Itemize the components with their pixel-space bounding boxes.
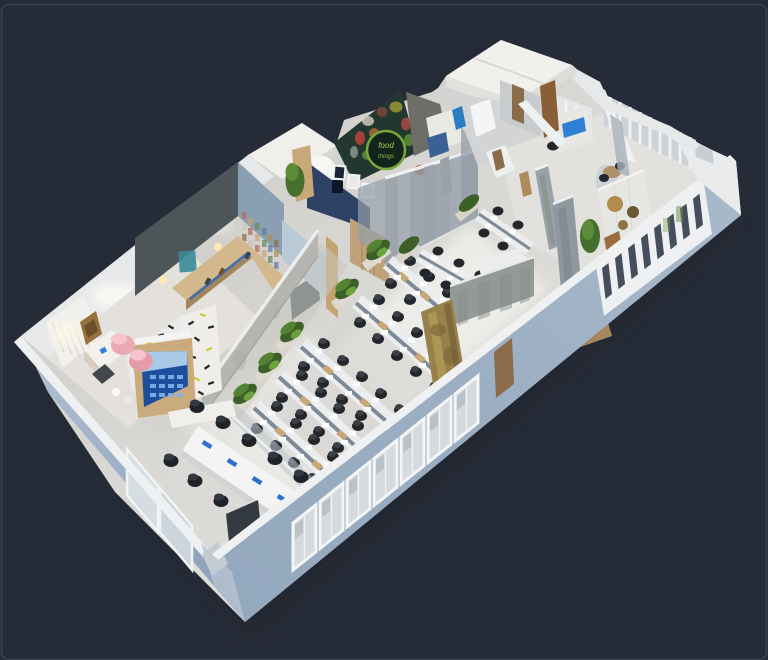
svg-text:food: food: [378, 141, 394, 150]
svg-text:things: things: [378, 154, 394, 160]
